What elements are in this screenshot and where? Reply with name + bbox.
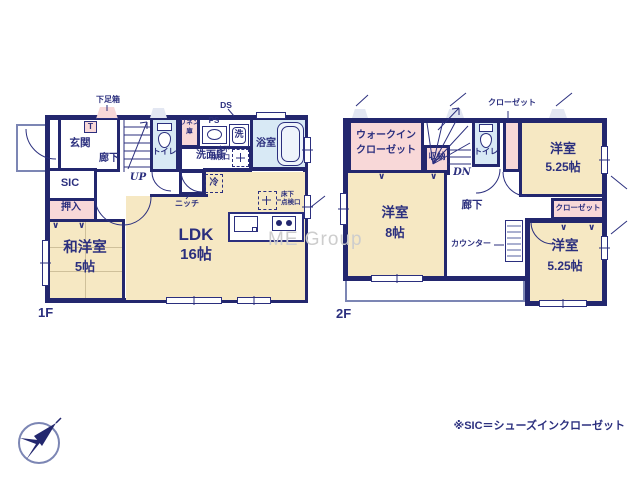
window: [166, 297, 222, 304]
f1-washroom-lobe: [179, 170, 205, 195]
wall-segment: [205, 168, 308, 171]
room-tr-label: 洋室: [527, 142, 599, 156]
sic-footnote: ※SIC＝シューズインクローゼット: [420, 417, 625, 433]
balcony: [345, 281, 525, 302]
room-br-label: 洋室: [533, 239, 597, 253]
washer-label: 洗: [229, 130, 249, 139]
stove-burner: [286, 220, 292, 226]
linen-label2: 庫: [179, 129, 200, 136]
kitchen-faucet: [252, 227, 257, 232]
storage-label: 収納: [424, 152, 450, 161]
up-label: UP: [124, 173, 152, 184]
closet-top-label: クローゼット: [486, 99, 538, 107]
bathtub-icon: [281, 126, 300, 162]
wic-label1: ウォークイン: [350, 131, 422, 142]
dn-label: DN: [448, 168, 476, 179]
window: [539, 300, 587, 307]
toilet-icon: [157, 123, 172, 131]
window: [601, 236, 608, 260]
f1-floor-tag: 1F: [38, 305, 53, 320]
wall-segment: [122, 219, 125, 301]
sliding-door-mark: ∨: [588, 223, 595, 232]
f2-floor-tag: 2F: [336, 306, 351, 321]
north-compass-icon: [12, 416, 64, 468]
floor-hatch-label: 床下: [281, 192, 307, 199]
counter-strip: [505, 220, 523, 262]
room-tr-size-label: 5.25帖: [524, 161, 602, 174]
genkan-label: 玄関: [58, 138, 102, 149]
window: [340, 193, 347, 225]
window-vent: [549, 109, 567, 118]
room-left-label: 洋室: [363, 206, 427, 220]
sliding-door-mark: ∨: [430, 172, 437, 181]
window: [42, 240, 49, 286]
toilet-icon: [479, 124, 493, 132]
wayou-label: 和洋室: [53, 241, 117, 256]
window-vent: [352, 109, 368, 118]
ldk-label: LDK: [164, 226, 228, 244]
window: [304, 137, 311, 163]
wall-segment: [150, 194, 208, 197]
sic-label: SIC: [50, 178, 90, 190]
bathroom-label: 浴室: [250, 139, 282, 150]
room-br-size-label: 5.25帖: [529, 260, 601, 273]
floor-hatch-label2: 点検口: [281, 200, 309, 207]
linen-label: リネン: [179, 120, 200, 127]
f2-room-tr: [519, 120, 605, 197]
getabako-box: [96, 107, 118, 119]
floor-hatch-label2: 点検口: [202, 155, 230, 162]
sliding-door-mark: ∨: [378, 172, 385, 181]
closet-br-label: クローゼット: [551, 204, 605, 212]
getabako-label: 下足箱: [88, 96, 128, 104]
window: [237, 297, 271, 304]
f2-closet-strip: [503, 120, 521, 172]
window: [601, 146, 608, 174]
floor-hatch-label: 床下: [204, 147, 230, 154]
floor-hatch-box: [258, 191, 277, 210]
ldk-size-label: 16帖: [164, 247, 228, 263]
stove-burner: [276, 220, 282, 226]
washbasin-bowl: [207, 129, 222, 140]
wayou-size-label: 5帖: [57, 260, 113, 274]
rouka-label: 廊下: [92, 154, 126, 165]
counter-label: カウンター: [448, 240, 494, 248]
toilet-label: トイレ: [150, 148, 179, 156]
rouka2-label: 廊下: [452, 200, 492, 211]
t-label: T: [84, 122, 97, 131]
wic-label2: クローゼット: [350, 146, 422, 157]
fridge-label: 冷: [205, 178, 223, 187]
sliding-door-mark: ∨: [560, 223, 567, 232]
window: [256, 112, 286, 119]
oshiire-label: 押入: [52, 203, 90, 214]
floorplan-canvas: ∨ ∨ 下足箱 T 玄関 廊下 UP トイレ リネン 庫 PS DS 洗 洗面所…: [0, 0, 640, 480]
f2-room-left: [345, 170, 447, 279]
sliding-door-mark: ∨: [52, 221, 59, 230]
sliding-door-mark: ∨: [78, 221, 85, 230]
toilet-label: トイレ: [472, 148, 500, 156]
ps-label: PS: [204, 117, 224, 125]
niche-label: ニッチ: [170, 200, 204, 208]
ds-label: DS: [216, 101, 236, 110]
window-vent: [446, 109, 464, 118]
window-vent: [150, 108, 167, 118]
window: [371, 275, 423, 282]
watermark: ME Group: [268, 229, 398, 251]
